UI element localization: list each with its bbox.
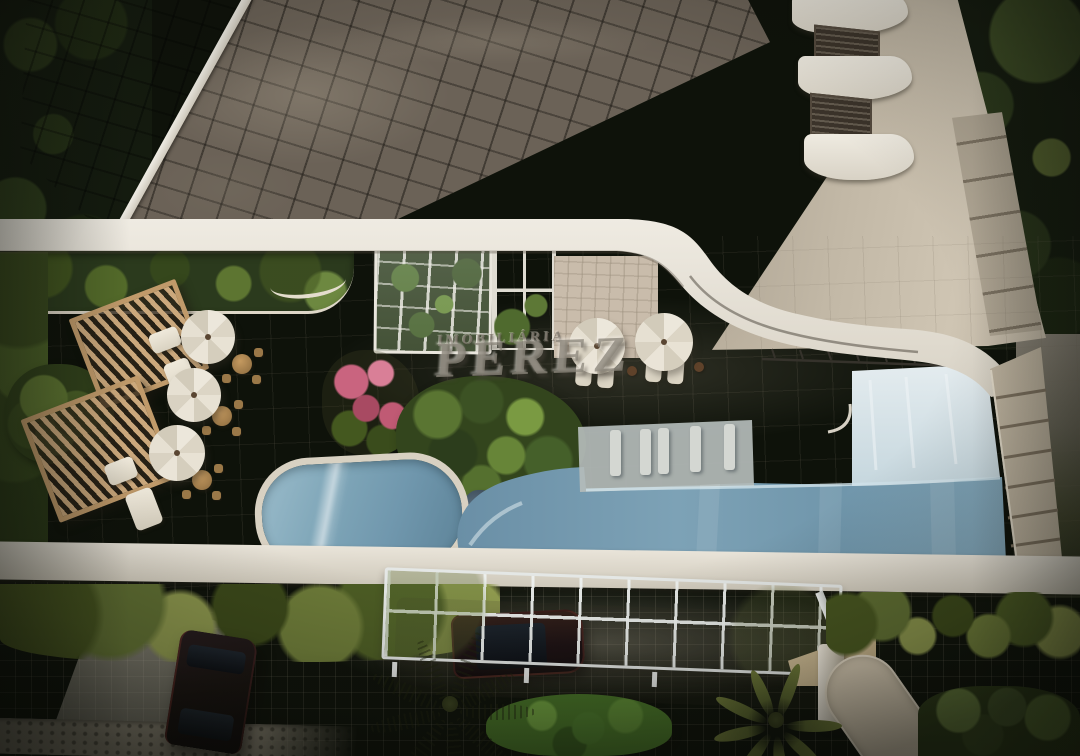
- car-windshield: [186, 644, 247, 675]
- watermark-line2: PEREZ: [434, 328, 634, 385]
- overhanging-plants-right: [826, 592, 1080, 672]
- in-pool-lounger: [724, 424, 735, 470]
- deck-curb-arc: [828, 404, 850, 432]
- palm-frond: [786, 720, 842, 732]
- palm-tree-small: [714, 676, 838, 756]
- slab-edge-shadow: [0, 252, 683, 287]
- in-pool-lounger: [658, 428, 669, 474]
- palm-frond: [779, 728, 824, 756]
- hedge-bottom-right: [918, 686, 1080, 756]
- in-pool-lounger: [610, 430, 621, 476]
- car-rear-window: [177, 708, 234, 742]
- in-pool-lounger: [690, 426, 701, 472]
- palm-tree-large: [368, 650, 532, 756]
- aerial-building-render: IMOBILIÁRIA PEREZ: [0, 0, 1080, 756]
- canopy-post: [652, 672, 658, 687]
- palm-crown: [768, 712, 784, 728]
- palm-crown: [442, 696, 458, 712]
- in-pool-lounger: [640, 429, 651, 475]
